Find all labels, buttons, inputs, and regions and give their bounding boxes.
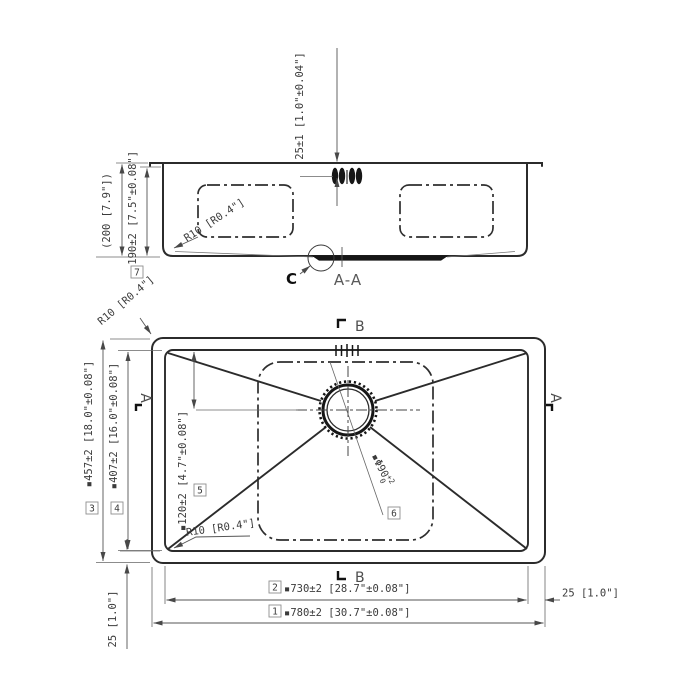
cut-mark — [338, 571, 346, 579]
dim-drain-offset-text: ▪120±2 [4.7"±0.08"] — [177, 411, 189, 531]
dim-rim-right-text: 25 [1.0"] — [562, 588, 619, 600]
section-marker-b-top: B — [338, 319, 365, 335]
leader-line — [140, 318, 151, 334]
sink-technical-drawing: 25±1 [1.0"±0.04"] (200 [7.9"]) ▪190±2 [7… — [0, 0, 700, 700]
dim-drain-diameter-text: ▪Φ90+20 — [366, 451, 397, 489]
dim-bowl-depth-text: ▪190±2 [7.5"±0.08"] — [127, 151, 139, 271]
leader-line — [174, 536, 250, 548]
plan-view: B B A A R10 [R0.4"] R10 [R0.4"] ▪ — [83, 274, 619, 649]
bowl-opening-outline — [165, 350, 528, 551]
dim-overall-length: 1 ▪780±2 [30.7"±0.08"] — [152, 567, 544, 627]
drawing-canvas: 25±1 [1.0"±0.04"] (200 [7.9"]) ▪190±2 [7… — [0, 0, 700, 700]
hidden-outline-left — [198, 185, 293, 237]
dim-overall-depth-text: (200 [7.9"]) — [101, 173, 113, 249]
dim-depths: (200 [7.9"]) ▪190±2 [7.5"±0.08"] 7 — [96, 151, 161, 279]
radius-text: R10 [R0.4"] — [96, 274, 157, 328]
dim-bowl-length: 2 ▪730±2 [28.7"±0.08"] — [165, 566, 528, 604]
section-marker-a-left: A — [136, 393, 153, 411]
dim-overall-width-text: ▪457±2 [18.0"±0.08"] — [83, 361, 95, 487]
dim-bowl-length-text: ▪730±2 [28.7"±0.08"] — [284, 583, 410, 595]
ref-num-3: 3 — [89, 504, 95, 515]
cut-mark — [338, 320, 346, 328]
ref-num-7: 7 — [134, 268, 140, 279]
marker-a-left-label: A — [137, 393, 153, 403]
section-title: A-A — [334, 271, 362, 289]
detail-c-label: C — [286, 270, 297, 288]
cut-mark — [136, 405, 142, 411]
radius-text: R10 [R0.4"] — [185, 517, 256, 539]
leader-line — [300, 266, 310, 274]
detail-c-callout: C — [286, 245, 334, 288]
cut-mark — [546, 405, 552, 411]
dim-rim-left-text: 25 [1.0"] — [107, 591, 119, 648]
ref-num-4: 4 — [114, 504, 120, 515]
ref-num-2: 2 — [272, 583, 278, 594]
marker-b-top-label: B — [355, 319, 365, 335]
ref-num-5: 5 — [197, 486, 203, 497]
dim-drain-offset: ▪120±2 [4.7"±0.08"] 5 — [177, 352, 298, 531]
dim-faucet-offset-text: 25±1 [1.0"±0.04"] — [294, 52, 306, 159]
dim-rim-right: 25 [1.0"] — [545, 566, 619, 627]
drain-boss — [311, 255, 449, 260]
dim-bowl-width: ▪407±2 [16.0"±0.08"] 4 — [108, 351, 162, 551]
ref-num-6: 6 — [391, 509, 397, 520]
dim-corner-radius-top: R10 [R0.4"] — [96, 274, 157, 334]
dim-overall-length-text: ▪780±2 [30.7"±0.08"] — [284, 607, 410, 619]
dim-faucet-offset: 25±1 [1.0"±0.04"] — [294, 48, 337, 206]
faucet-hole-hatch-section — [332, 168, 362, 184]
dim-corner-radius-section: R10 [R0.4"] — [174, 197, 247, 248]
rim-profile — [150, 163, 542, 166]
marker-a-right-label: A — [547, 393, 563, 403]
ref-num-1: 1 — [272, 607, 278, 618]
section-view: 25±1 [1.0"±0.04"] (200 [7.9"]) ▪190±2 [7… — [96, 48, 542, 289]
dim-bowl-width-text: ▪407±2 [16.0"±0.08"] — [108, 363, 120, 489]
hidden-outline-right — [400, 185, 493, 237]
section-marker-a-right: A — [546, 393, 563, 411]
